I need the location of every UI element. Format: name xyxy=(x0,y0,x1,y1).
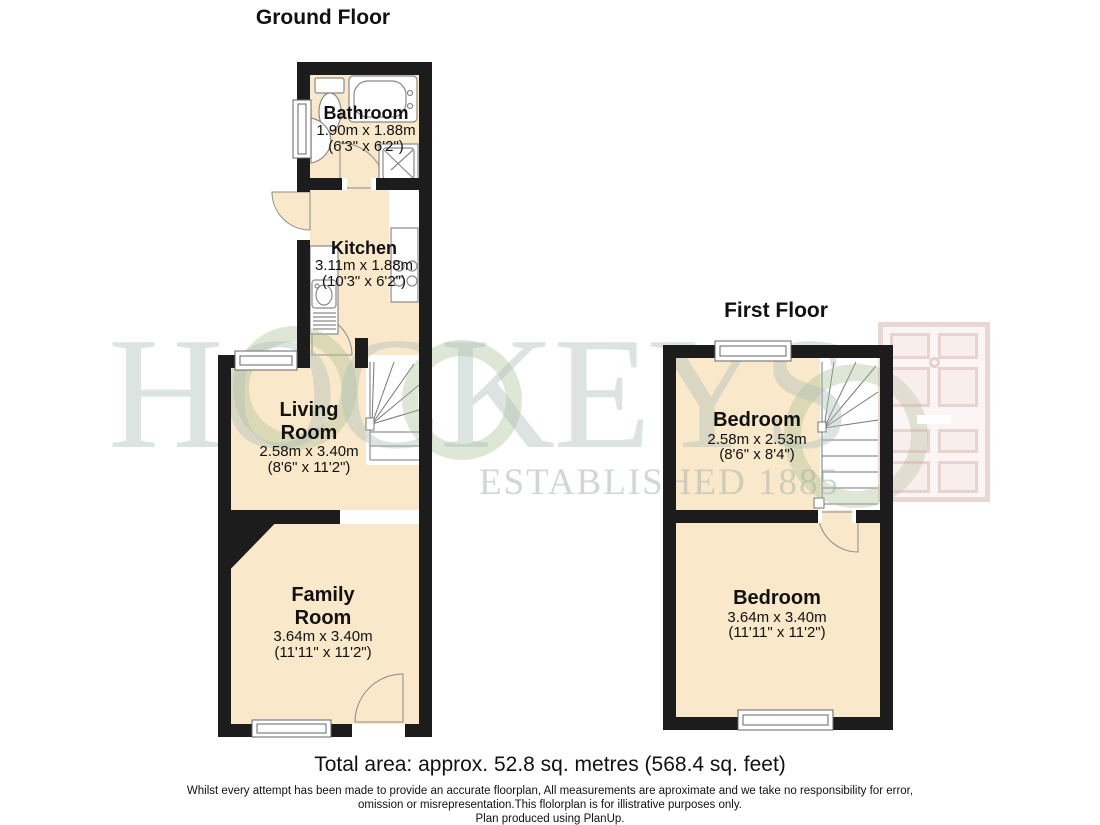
bedroom-back-window xyxy=(738,710,833,730)
ground-floor-title: Ground Floor xyxy=(256,6,390,30)
room-metric: 1.90m x 1.88m xyxy=(256,123,476,139)
disclaimer-line-1: Whilst every attempt has been made to pr… xyxy=(0,784,1100,798)
room-name: Bathroom xyxy=(256,103,476,123)
room-metric: 2.58m x 2.53m xyxy=(647,432,867,448)
footer: Total area: approx. 52.8 sq. metres (568… xyxy=(0,753,1100,825)
room-imperial: (10'3" x 6'2") xyxy=(254,274,474,290)
total-area-text: Total area: approx. 52.8 sq. metres (568… xyxy=(0,753,1100,777)
room-imperial: (6'3" x 6'2") xyxy=(256,139,476,155)
room-name: Bedroom xyxy=(647,409,867,432)
room-label-family-room: Family Room 3.64m x 3.40m (11'11" x 11'2… xyxy=(213,584,433,661)
living-room-window xyxy=(235,351,297,370)
wall-layer xyxy=(0,0,1100,825)
family-room-window xyxy=(252,720,331,737)
room-label-bedroom-back: Bedroom 3.64m x 3.40m (11'11" x 11'2") xyxy=(667,587,887,641)
produced-by-text: Plan produced using PlanUp. xyxy=(0,812,1100,825)
room-metric: 3.64m x 3.40m xyxy=(213,629,433,645)
room-metric: 3.64m x 3.40m xyxy=(667,610,887,626)
bedroom-front-window xyxy=(715,341,791,361)
room-label-bathroom: Bathroom 1.90m x 1.88m (6'3" x 6'2") xyxy=(256,103,476,155)
room-name: Kitchen xyxy=(254,238,474,258)
room-imperial: (8'6" x 8'4") xyxy=(647,447,867,463)
room-name: Family Room xyxy=(213,584,433,629)
first-floor-walls xyxy=(663,345,893,730)
room-imperial: (11'11" x 11'2") xyxy=(213,645,433,661)
room-label-living-room: Living Room 2.58m x 3.40m (8'6" x 11'2") xyxy=(199,399,419,476)
room-label-kitchen: Kitchen 3.11m x 1.88m (10'3" x 6'2") xyxy=(254,238,474,290)
room-imperial: (11'11" x 11'2") xyxy=(667,625,887,641)
disclaimer-line-2: omission or misrepresentation.This flolo… xyxy=(0,798,1100,812)
floorplan-canvas: HOCKEYS ESTABLISHED 1885 xyxy=(0,0,1100,825)
room-metric: 2.58m x 3.40m xyxy=(199,444,419,460)
room-name: Bedroom xyxy=(667,587,887,610)
room-metric: 3.11m x 1.88m xyxy=(254,258,474,274)
room-imperial: (8'6" x 11'2") xyxy=(199,460,419,476)
first-floor-title: First Floor xyxy=(724,299,828,323)
room-name: Living Room xyxy=(199,399,419,444)
room-label-bedroom-front: Bedroom 2.58m x 2.53m (8'6" x 8'4") xyxy=(647,409,867,463)
